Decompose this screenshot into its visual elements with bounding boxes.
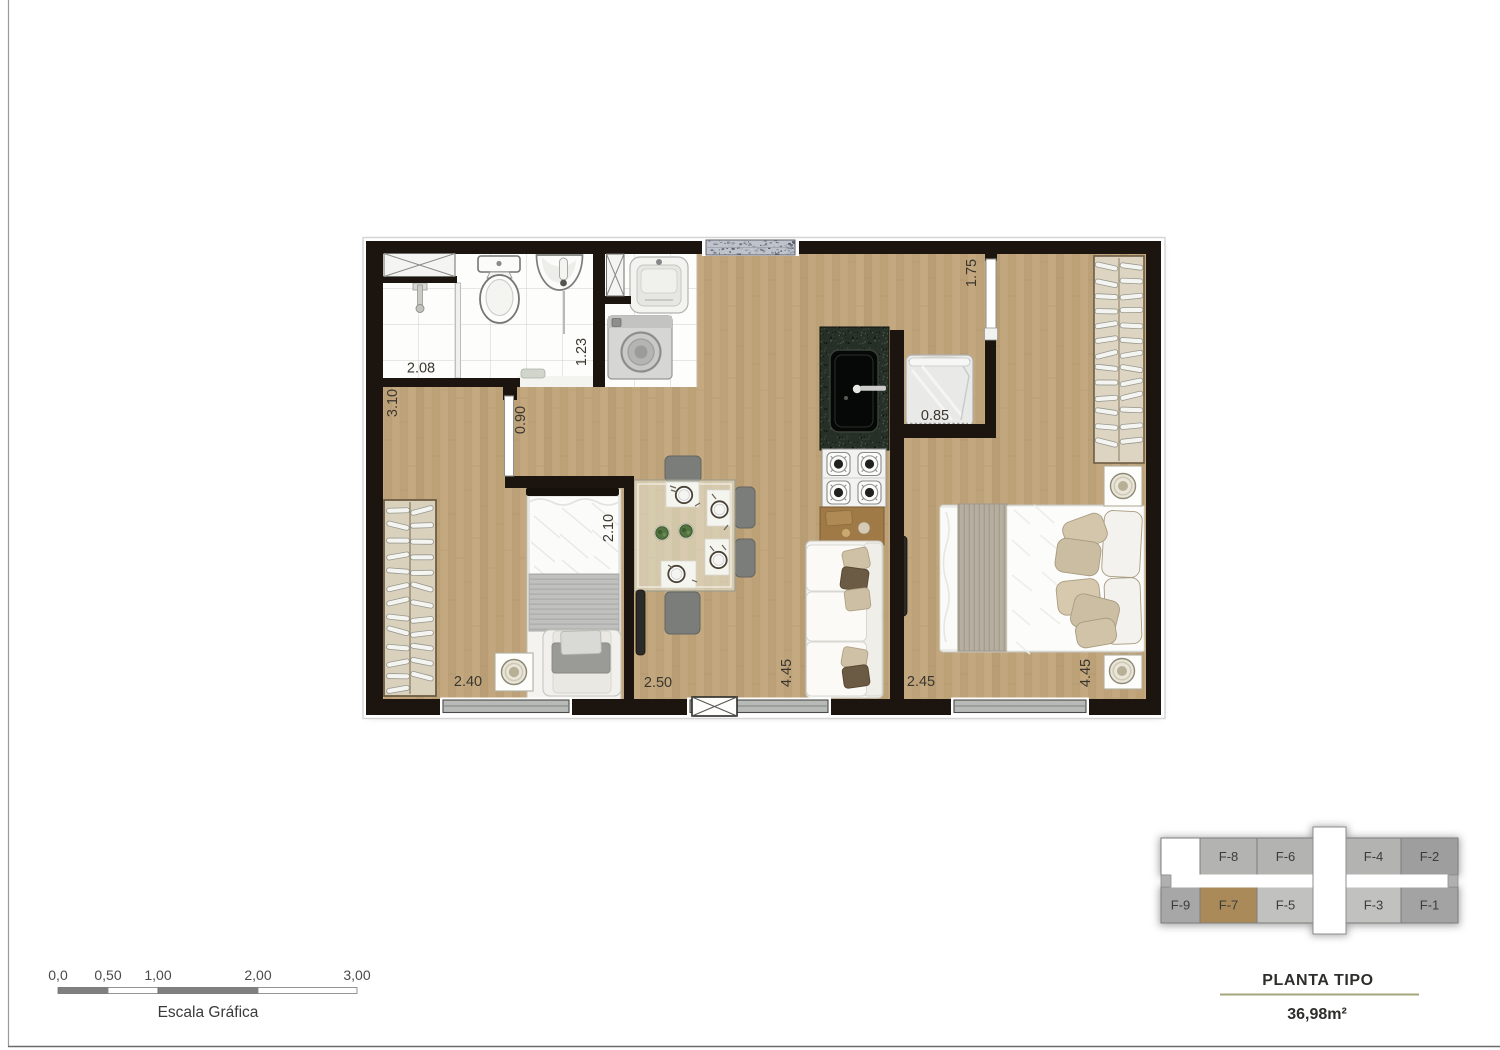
svg-text:3,00: 3,00: [343, 967, 370, 983]
svg-text:F-5: F-5: [1276, 898, 1296, 913]
svg-text:2.45: 2.45: [907, 674, 935, 690]
svg-text:3.10: 3.10: [385, 389, 401, 417]
svg-text:2.40: 2.40: [454, 674, 482, 690]
svg-text:1.75: 1.75: [964, 259, 980, 287]
svg-text:36,98m²: 36,98m²: [1287, 1006, 1347, 1023]
svg-text:F-3: F-3: [1364, 898, 1384, 913]
svg-text:F-9: F-9: [1171, 898, 1191, 913]
svg-text:PLANTA TIPO: PLANTA TIPO: [1262, 972, 1373, 989]
svg-text:1,00: 1,00: [144, 967, 171, 983]
svg-text:F-2: F-2: [1420, 849, 1440, 864]
svg-text:F-8: F-8: [1219, 849, 1239, 864]
svg-text:2.08: 2.08: [407, 361, 435, 377]
svg-text:F-4: F-4: [1364, 849, 1384, 864]
svg-text:Escala Gráfica: Escala Gráfica: [158, 1004, 259, 1021]
svg-text:4.45: 4.45: [779, 659, 795, 687]
svg-text:1.23: 1.23: [574, 338, 590, 366]
svg-text:F-7: F-7: [1219, 898, 1239, 913]
svg-text:2,00: 2,00: [244, 967, 271, 983]
svg-text:0.85: 0.85: [921, 408, 949, 424]
svg-text:2.10: 2.10: [601, 514, 617, 542]
svg-text:0.90: 0.90: [513, 406, 529, 434]
svg-text:0,50: 0,50: [94, 967, 121, 983]
svg-text:2.50: 2.50: [644, 675, 672, 691]
svg-text:F-6: F-6: [1276, 849, 1296, 864]
svg-text:4.45: 4.45: [1078, 659, 1094, 687]
svg-text:0,0: 0,0: [48, 967, 68, 983]
svg-text:F-1: F-1: [1420, 898, 1440, 913]
